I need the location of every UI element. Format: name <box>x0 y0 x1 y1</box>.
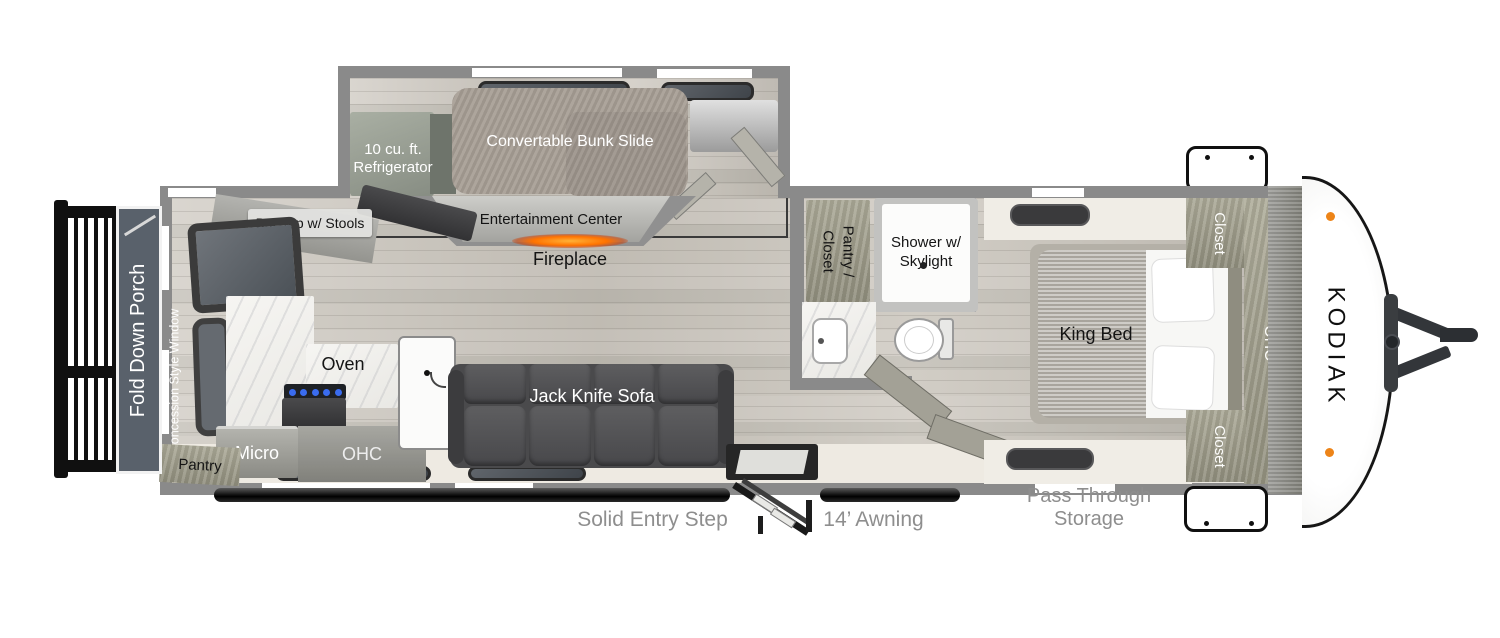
faucet <box>818 338 824 344</box>
porch-label: Fold Down Porch <box>128 263 151 416</box>
concession-window-label-box: Concession Style Window <box>162 294 186 468</box>
cushion <box>594 406 656 466</box>
awning-bar <box>820 488 960 502</box>
pantry-cabinet: Pantry <box>159 444 241 486</box>
awning-label: 14’ Awning <box>816 506 931 534</box>
bunk-label: Convertable Bunk Slide <box>470 118 670 166</box>
hitch-jack <box>1384 334 1400 350</box>
sofa-label-box: Jack Knife Sofa <box>490 384 694 408</box>
latch-dot <box>1249 155 1254 160</box>
window-marker <box>472 68 622 77</box>
burner <box>323 389 330 396</box>
porch-rail-post <box>54 200 68 478</box>
porch-label-box: Fold Down Porch <box>116 206 162 474</box>
cushion <box>529 406 591 466</box>
porch-rail-baluster <box>94 210 98 470</box>
closet-top-label: Closet <box>1211 212 1228 255</box>
porch-rail-baluster <box>104 210 108 470</box>
window-marker <box>168 188 216 197</box>
fold-step-leg <box>806 500 812 532</box>
entry-step-platform-inner <box>735 450 808 474</box>
sofa-label: Jack Knife Sofa <box>529 386 654 407</box>
brand-logo-box: KODIAK <box>1314 262 1356 432</box>
tray <box>1010 204 1090 226</box>
latch-dot <box>1249 521 1254 526</box>
cushion <box>464 406 526 466</box>
dresser <box>690 100 778 152</box>
headboard <box>1228 246 1242 422</box>
bed-label-box: King Bed <box>1044 322 1148 346</box>
latch-dot <box>1205 155 1210 160</box>
hitch-strut <box>1390 345 1452 379</box>
marker-light <box>1326 212 1335 221</box>
closet-top-label-box: Closet <box>1204 198 1234 268</box>
window-marker <box>657 69 752 78</box>
marker-light <box>1325 448 1334 457</box>
micro-label: Micro <box>235 443 279 464</box>
toilet-seat <box>904 326 934 354</box>
pantry-closet-label-box: Pantry / Closet <box>806 200 870 302</box>
pantry-label: Pantry <box>178 455 222 474</box>
bed-label: King Bed <box>1059 324 1132 345</box>
fireplace-label: Fireplace <box>518 246 622 272</box>
hitch-tongue <box>1440 328 1478 342</box>
window <box>468 466 586 481</box>
shower-drain <box>920 262 927 269</box>
sofa-armrest <box>448 370 464 464</box>
kitchen-ohc-label: OHC <box>342 444 382 465</box>
tray <box>1006 448 1094 470</box>
fold-step-leg <box>758 516 763 534</box>
storage-label: Pass Through Storage <box>990 494 1188 522</box>
pantry-closet-label-2: Closet <box>819 219 839 283</box>
refrigerator-label: 10 cu. ft. Refrigerator <box>350 132 436 186</box>
pantry-closet-label-1: Pantry / <box>838 219 858 283</box>
burner <box>335 389 342 396</box>
entry-step-label: Solid Entry Step <box>560 506 745 534</box>
awning-bar <box>214 488 730 502</box>
closet-bottom-label-box: Closet <box>1204 410 1234 482</box>
porch-rail-baluster <box>84 210 88 470</box>
burner <box>300 389 307 396</box>
concession-window-label: Concession Style Window <box>167 309 181 454</box>
burner <box>312 389 319 396</box>
pillow <box>1151 345 1215 411</box>
rv-floorplan: 10 cu. ft. Refrigerator Convertable Bunk… <box>0 0 1500 638</box>
porch-rail-baluster <box>74 210 78 470</box>
cushion <box>658 406 720 466</box>
shower-pan: Shower w/ Skylight <box>882 204 970 302</box>
window-marker <box>1032 188 1084 197</box>
burner <box>289 389 296 396</box>
sofa-seat-cushions <box>464 406 720 466</box>
slide-boundary-line <box>786 198 788 238</box>
oven-label: Oven <box>306 352 380 376</box>
entertainment-label: Entertainment Center <box>480 211 623 228</box>
brand-logo: KODIAK <box>1321 287 1349 408</box>
storage-door-bottom <box>1184 486 1268 532</box>
closet-bottom-label: Closet <box>1211 425 1228 468</box>
latch-dot <box>1204 521 1209 526</box>
